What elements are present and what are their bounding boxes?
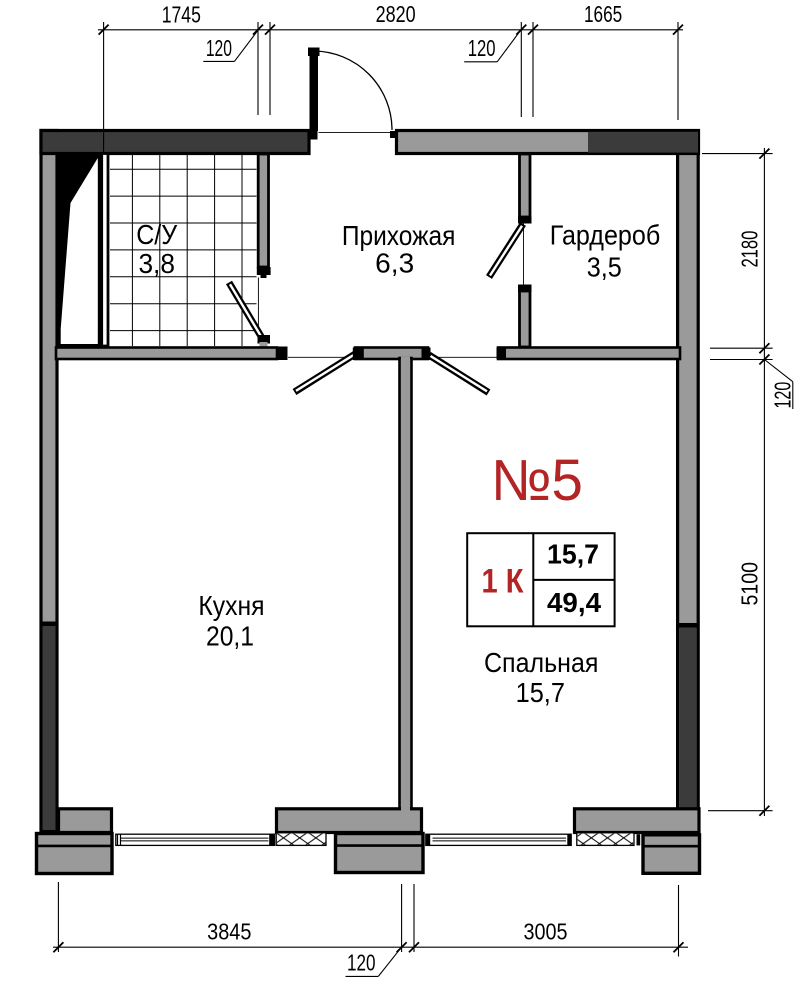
svg-text:3,8: 3,8 <box>138 248 175 279</box>
svg-text:15,7: 15,7 <box>516 677 565 708</box>
svg-text:120: 120 <box>347 950 376 976</box>
svg-text:1 К: 1 К <box>482 563 524 601</box>
svg-text:3845: 3845 <box>207 919 251 945</box>
svg-text:49,4: 49,4 <box>547 587 601 618</box>
svg-text:20,1: 20,1 <box>206 621 254 652</box>
svg-text:Кухня: Кухня <box>198 590 264 621</box>
svg-text:С/У: С/У <box>136 219 177 250</box>
svg-text:120: 120 <box>206 35 232 61</box>
svg-text:120: 120 <box>770 382 796 409</box>
svg-text:120: 120 <box>468 35 496 61</box>
svg-text:Прихожая: Прихожая <box>342 220 456 251</box>
svg-text:15,7: 15,7 <box>547 539 599 570</box>
svg-text:Гардероб: Гардероб <box>550 220 661 251</box>
svg-text:№5: №5 <box>491 448 583 513</box>
svg-text:5100: 5100 <box>737 562 763 606</box>
svg-text:1745: 1745 <box>162 1 201 27</box>
svg-text:1665: 1665 <box>584 1 622 27</box>
svg-text:Спальная: Спальная <box>484 647 598 678</box>
svg-text:2180: 2180 <box>737 231 763 268</box>
svg-text:6,3: 6,3 <box>375 248 414 279</box>
svg-text:3005: 3005 <box>524 919 568 945</box>
svg-text:3,5: 3,5 <box>587 251 622 282</box>
svg-text:2820: 2820 <box>376 1 416 27</box>
